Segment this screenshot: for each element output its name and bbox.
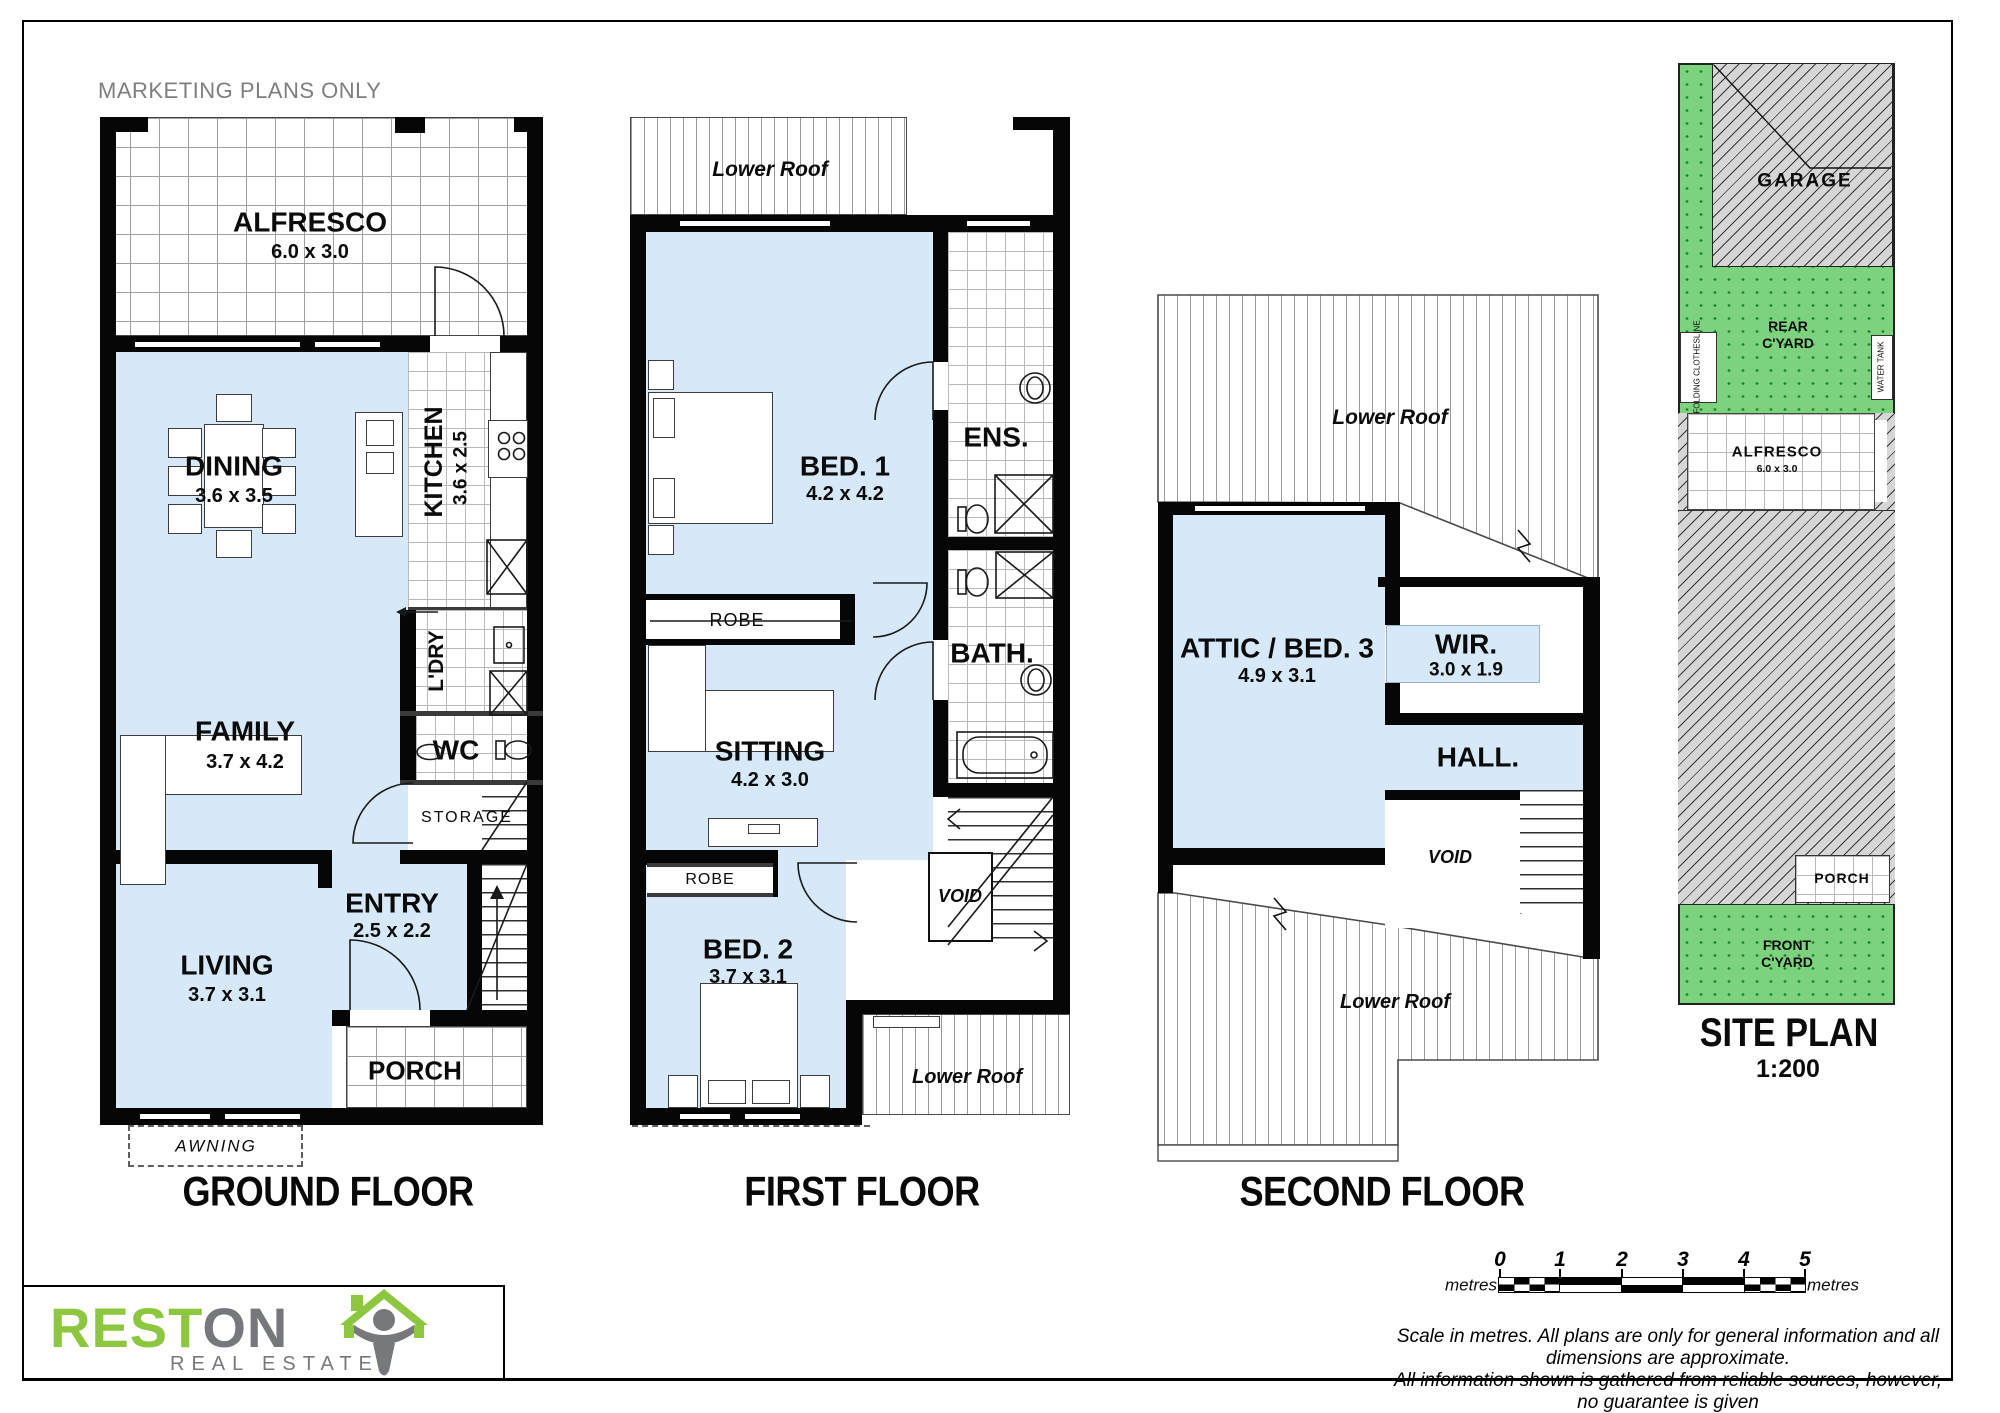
disclaimer: Scale in metres. All plans are only for … bbox=[1382, 1326, 1954, 1413]
wall bbox=[1158, 502, 1173, 893]
logo-house-person-icon bbox=[340, 1287, 428, 1381]
site-alfresco bbox=[1687, 413, 1875, 510]
brand-part-grey: ON bbox=[202, 1296, 288, 1359]
room-dims: 3.0 x 1.9 bbox=[1429, 659, 1503, 680]
scale-segment bbox=[1621, 1278, 1682, 1292]
area-label: WATER TANK bbox=[1878, 342, 1887, 393]
roof-label: Lower Roof bbox=[1332, 406, 1448, 430]
brand-part-green: REST bbox=[50, 1296, 202, 1359]
room-label: HALL. bbox=[1437, 741, 1519, 772]
floorplan-sheet: MARKETING PLANS ONLY bbox=[0, 0, 2000, 1413]
site-dwelling bbox=[1678, 510, 1895, 905]
scale-segment bbox=[1559, 1278, 1620, 1292]
wall bbox=[1385, 713, 1583, 725]
area-label: REAR bbox=[1768, 319, 1808, 335]
roof-label: Lower Roof bbox=[1340, 991, 1450, 1013]
site-garage-roofline bbox=[1712, 63, 1893, 267]
floor-title: SECOND FLOOR bbox=[1239, 1169, 1524, 1216]
area-dims: 6.0 x 3.0 bbox=[1757, 464, 1798, 476]
wall bbox=[1158, 848, 1400, 865]
watermark: MARKETING PLANS ONLY bbox=[98, 78, 381, 104]
wall bbox=[1583, 587, 1600, 959]
window bbox=[1195, 504, 1365, 513]
scale-segment bbox=[1499, 1278, 1559, 1292]
second-stairs bbox=[1520, 790, 1583, 913]
area-label: C'YARD bbox=[1761, 955, 1813, 971]
scale-unit-left: metres bbox=[1445, 1275, 1497, 1294]
room-dims: 4.9 x 3.1 bbox=[1238, 665, 1316, 687]
scale-segment bbox=[1744, 1278, 1805, 1292]
room-label: ATTIC / BED. 3 bbox=[1180, 632, 1374, 663]
room-label: WIR. bbox=[1435, 628, 1497, 659]
scale-bar-strip bbox=[1498, 1277, 1806, 1293]
logo-box: RESTON REAL ESTATE bbox=[22, 1285, 505, 1381]
wall bbox=[1385, 502, 1400, 625]
site-alfresco-step bbox=[1875, 420, 1887, 502]
disclaimer-line: Scale in metres. All plans are only for … bbox=[1382, 1326, 1954, 1370]
scale-segment bbox=[1682, 1278, 1743, 1292]
room-label: VOID bbox=[1428, 847, 1472, 867]
site-plan-title: SITE PLAN bbox=[1700, 1011, 1879, 1055]
area-label: GARAGE bbox=[1757, 170, 1852, 191]
floor-title: FIRST FLOOR bbox=[744, 1169, 979, 1216]
site-plan-scale: 1:200 bbox=[1756, 1055, 1820, 1083]
disclaimer-line: All information shown is gathered from r… bbox=[1382, 1370, 1954, 1413]
brand-wordmark: RESTON bbox=[50, 1295, 288, 1360]
first-floor-details bbox=[630, 115, 1070, 1175]
area-label: PORCH bbox=[1814, 871, 1870, 887]
wall bbox=[1385, 790, 1520, 800]
area-label: FRONT bbox=[1763, 938, 1811, 954]
area-label: C'YARD bbox=[1762, 336, 1814, 352]
wall bbox=[1378, 577, 1600, 587]
area-label: ALFRESCO bbox=[1732, 445, 1823, 462]
area-label: FOLDING CLOTHESLINE bbox=[1694, 320, 1703, 413]
floor-title: GROUND FLOOR bbox=[182, 1169, 473, 1216]
scale-unit-right: metres bbox=[1807, 1275, 1859, 1294]
ground-floor-details bbox=[100, 115, 543, 1175]
